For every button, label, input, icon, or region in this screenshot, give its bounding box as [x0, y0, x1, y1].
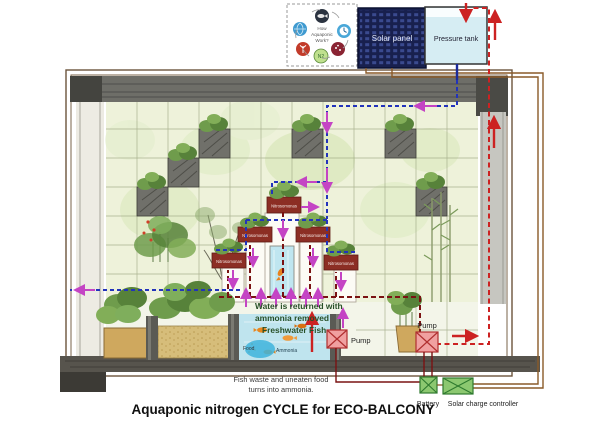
planter-cell [137, 172, 168, 216]
cycle-badge: How Aquaponic Work? N2 [287, 4, 357, 66]
illustration-canvas: How Aquaponic Work? N2 [0, 0, 600, 424]
diagram-title: Aquaponic nitrogen CYCLE for ECO-BALCONY [132, 402, 435, 417]
ammonia-label: Ammonia [276, 348, 297, 354]
bacteria-box-label: Nitrosomonas [216, 259, 242, 264]
freshwater-fish-label: Freshwater Fish [262, 325, 326, 335]
beam-left-corner [70, 76, 102, 102]
pump-2: Pump [416, 321, 438, 352]
pressure-tank-label: Pressure tank [434, 34, 479, 43]
nitrogen-icon: N2 [314, 49, 328, 63]
aquaponic-diagram: How Aquaponic Work? N2 [0, 0, 600, 424]
svg-text:N2: N2 [318, 54, 325, 60]
grow-bed-post [146, 316, 158, 360]
solar-charge-controller: Solar charge controller [437, 378, 519, 408]
return-caption-2: ammonia removed [255, 313, 329, 323]
top-beam [70, 76, 508, 102]
food-label: Food [243, 346, 255, 352]
bacteria-box-label: Nitrosomonas [328, 261, 354, 266]
beam-right-corner [476, 76, 508, 116]
floor-left-step [60, 372, 106, 392]
badge-text-1: How [317, 26, 327, 31]
return-caption-1: Water is returned with [255, 301, 343, 311]
bacteria-icon [331, 42, 345, 56]
pedestal-column [334, 270, 356, 302]
solar-panel-label: Solar panel [372, 34, 413, 43]
planter-cell [168, 143, 199, 187]
solar-panel: Solar panel [358, 8, 426, 68]
footnote-line-2: turns into ammonia. [249, 385, 314, 394]
footnote-line-1: Fish waste and uneaten food [234, 375, 329, 384]
planter-cell [199, 114, 230, 158]
planter-cell [385, 114, 416, 158]
globe-icon [293, 22, 307, 36]
controller-label: Solar charge controller [448, 401, 519, 408]
pump-2-label: Pump [417, 321, 437, 330]
clock-icon [337, 24, 351, 38]
bacteria-box-label: Nitrosomonas [300, 233, 326, 238]
badge-text-3: Work? [315, 38, 329, 43]
badge-text-2: Aquaponic [311, 32, 333, 37]
fish-icon [315, 9, 329, 23]
pump-1-label: Pump [351, 336, 371, 345]
pressure-tank: Pressure tank [425, 7, 487, 64]
bacteria-box-label: Nitrosomonas [271, 204, 297, 209]
planter-cell [292, 114, 323, 158]
